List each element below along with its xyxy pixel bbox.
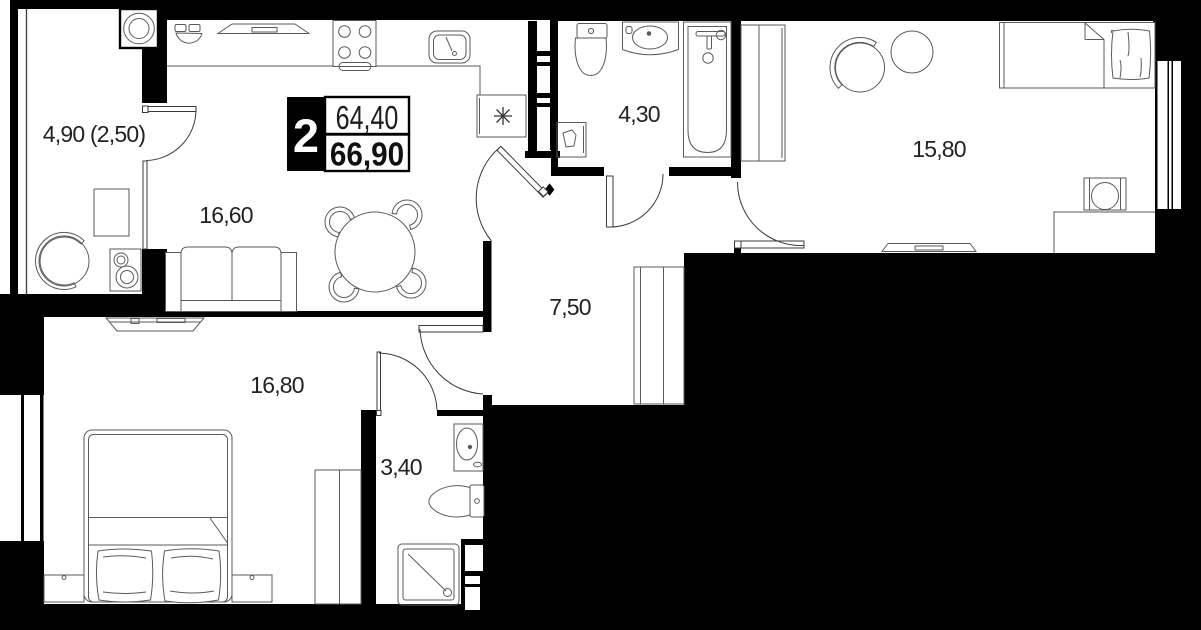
svg-text:16,60: 16,60 xyxy=(199,202,253,228)
svg-text:64,40: 64,40 xyxy=(336,100,399,137)
svg-text:2: 2 xyxy=(293,109,319,162)
svg-text:16,80: 16,80 xyxy=(250,372,304,398)
svg-text:15,80: 15,80 xyxy=(912,136,966,162)
svg-text:4,30: 4,30 xyxy=(618,101,660,127)
svg-text:4,90 (2,50): 4,90 (2,50) xyxy=(43,121,146,147)
svg-text:3,40: 3,40 xyxy=(380,454,422,480)
svg-text:7,50: 7,50 xyxy=(549,294,591,320)
svg-text:66,90: 66,90 xyxy=(330,136,404,173)
